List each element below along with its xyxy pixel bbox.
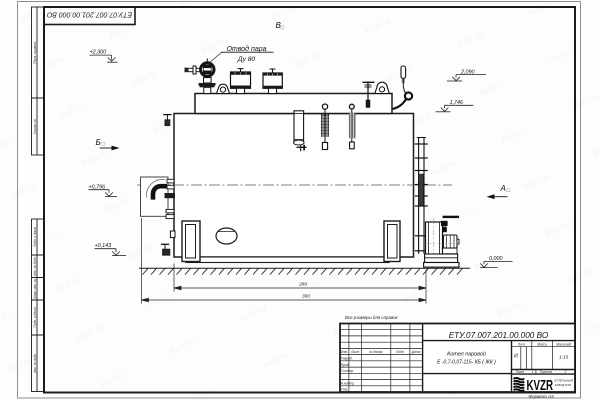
svg-text:ЕТУ.07.007.201.00.000 ВО: ЕТУ.07.007.201.00.000 ВО	[46, 11, 132, 18]
svg-text:Справ. №: Справ. №	[33, 118, 37, 134]
svg-text:KVZR: KVZR	[527, 378, 554, 394]
svg-text:2: 2	[564, 370, 567, 374]
svg-text:280: 280	[298, 282, 307, 288]
svg-text:390: 390	[302, 294, 310, 300]
svg-text:Котел паровой: Котел паровой	[447, 350, 486, 357]
svg-text:№ докум.: № докум.	[369, 350, 383, 354]
svg-text:Дата: Дата	[411, 350, 421, 354]
svg-text:Листов: Листов	[539, 370, 553, 374]
svg-text:Утв.: Утв.	[341, 388, 349, 392]
svg-text:1: 1	[532, 370, 534, 374]
svg-text:Разраб.: Разраб.	[341, 357, 353, 361]
svg-text:Перв. примен.: Перв. примен.	[33, 41, 37, 64]
svg-text:Лит.: Лит.	[517, 342, 526, 346]
svg-text:Подп.: Подп.	[396, 350, 405, 354]
svg-text:Инв. № подл.: Инв. № подл.	[33, 353, 37, 373]
svg-text:Н.контр.: Н.контр.	[341, 382, 355, 386]
svg-text:Е -0,7-0,07-115- КБ ( ЖК ): Е -0,7-0,07-115- КБ ( ЖК )	[437, 360, 496, 366]
svg-text:Ду 80: Ду 80	[237, 56, 256, 63]
svg-text:Масса: Масса	[537, 342, 547, 346]
svg-text:И: И	[514, 354, 518, 360]
svg-text:Изм.: Изм.	[341, 350, 348, 354]
svg-text:Подп. и дата: Подп. и дата	[33, 307, 37, 327]
svg-text:Пров.: Пров.	[341, 363, 350, 367]
svg-text:ЗАВОД РЭП: ЗАВОД РЭП	[555, 383, 572, 387]
svg-text:Инв. № дубл.: Инв. № дубл.	[33, 256, 37, 276]
svg-text:КОТЕЛЬНЫЙ: КОТЕЛЬНЫЙ	[555, 379, 574, 383]
svg-text:Лист: Лист	[515, 370, 525, 374]
svg-text:ЕТУ.07.007.201.00.000 ВО: ЕТУ.07.007.201.00.000 ВО	[449, 331, 549, 340]
svg-text:Т.контр.: Т.контр.	[341, 369, 354, 373]
svg-text:Формат А3: Формат А3	[528, 394, 554, 399]
svg-text:Подп. и дата: Подп. и дата	[33, 227, 37, 247]
svg-text:1:15: 1:15	[559, 354, 569, 360]
svg-text:Масштаб: Масштаб	[556, 342, 571, 346]
svg-text:А: А	[500, 184, 506, 193]
svg-text:Б: Б	[96, 138, 101, 147]
svg-text:Лист: Лист	[350, 350, 360, 354]
svg-text:Все размеры для справок: Все размеры для справок	[345, 315, 399, 320]
svg-text:Взам. инв. №: Взам. инв. №	[33, 278, 37, 298]
